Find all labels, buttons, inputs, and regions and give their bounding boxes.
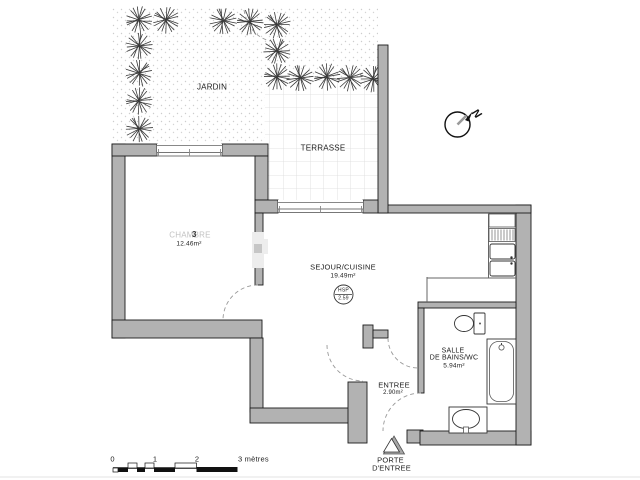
bedroom-window bbox=[157, 144, 222, 156]
sejour-area: 19.49m² bbox=[330, 272, 355, 279]
north-label: N bbox=[469, 107, 484, 122]
page-divider bbox=[0, 477, 640, 478]
porte-entree-label-line2: D'ENTREE bbox=[372, 463, 411, 472]
bathroom-sink-icon bbox=[449, 407, 487, 433]
floor-plan: N JARDIN TERRASSE CHAMBRE 12.46m² 3 SEJO… bbox=[0, 0, 640, 480]
terrace-tiles bbox=[265, 80, 378, 200]
terrasse-label: TERRASSE bbox=[301, 144, 346, 153]
scale-tick-0: 0 bbox=[110, 455, 114, 464]
scale-bar bbox=[113, 463, 238, 472]
watermark-shape bbox=[252, 232, 268, 268]
chambre-label: CHAMBRE bbox=[169, 231, 210, 240]
hsp-label: HSP bbox=[338, 289, 349, 294]
door-arc-entree bbox=[388, 338, 418, 368]
living-room-window bbox=[278, 200, 363, 213]
door-arc-bedroom bbox=[223, 285, 258, 320]
toilet-icon bbox=[455, 313, 486, 334]
floor-plan-drawing: N bbox=[0, 0, 640, 480]
sejour-label: SEJOUR/CUISINE bbox=[310, 263, 376, 272]
scale-end-label: 3 mètres bbox=[238, 455, 269, 464]
watermark-digit: 3 bbox=[192, 230, 196, 239]
entree-area: 2.90m² bbox=[383, 390, 403, 396]
door-arc-living bbox=[327, 345, 363, 381]
scale-tick-1: 1 bbox=[153, 455, 157, 464]
kitchen-counter bbox=[489, 214, 515, 276]
hsp-value: 2.59 bbox=[338, 296, 349, 301]
entrance-marker-icon bbox=[384, 436, 405, 454]
chambre-area: 12.46m² bbox=[176, 240, 201, 247]
cooktop-icon bbox=[489, 229, 515, 242]
bathroom-area: 5.94m² bbox=[443, 362, 464, 369]
north-arrow-icon: N bbox=[445, 107, 484, 137]
scale-tick-2: 2 bbox=[195, 455, 199, 464]
entree-label: ENTREE bbox=[378, 380, 410, 389]
door-arc-bathroom bbox=[383, 393, 421, 431]
bathtub-icon bbox=[487, 339, 516, 404]
bathroom-label-line2: DE BAINS/WC bbox=[430, 354, 478, 361]
bathroom-label-line1: SALLE bbox=[442, 347, 465, 354]
jardin-label: JARDIN bbox=[197, 83, 227, 92]
